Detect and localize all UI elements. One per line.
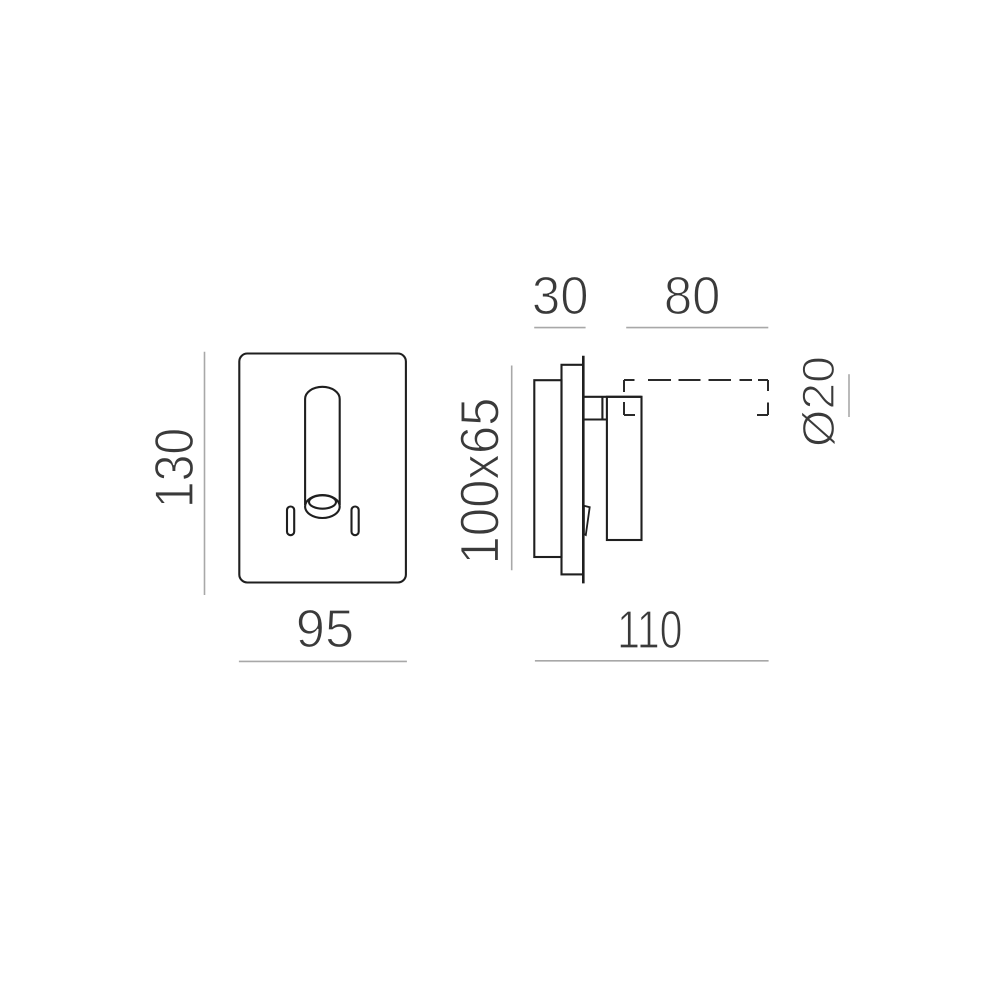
svg-text:Ø20: Ø20 — [793, 356, 844, 447]
svg-text:95: 95 — [296, 599, 354, 659]
svg-text:30: 30 — [532, 266, 589, 326]
svg-text:110: 110 — [617, 600, 682, 660]
svg-text:80: 80 — [664, 266, 721, 326]
svg-text:100x65: 100x65 — [449, 398, 511, 565]
svg-text:130: 130 — [143, 428, 205, 508]
